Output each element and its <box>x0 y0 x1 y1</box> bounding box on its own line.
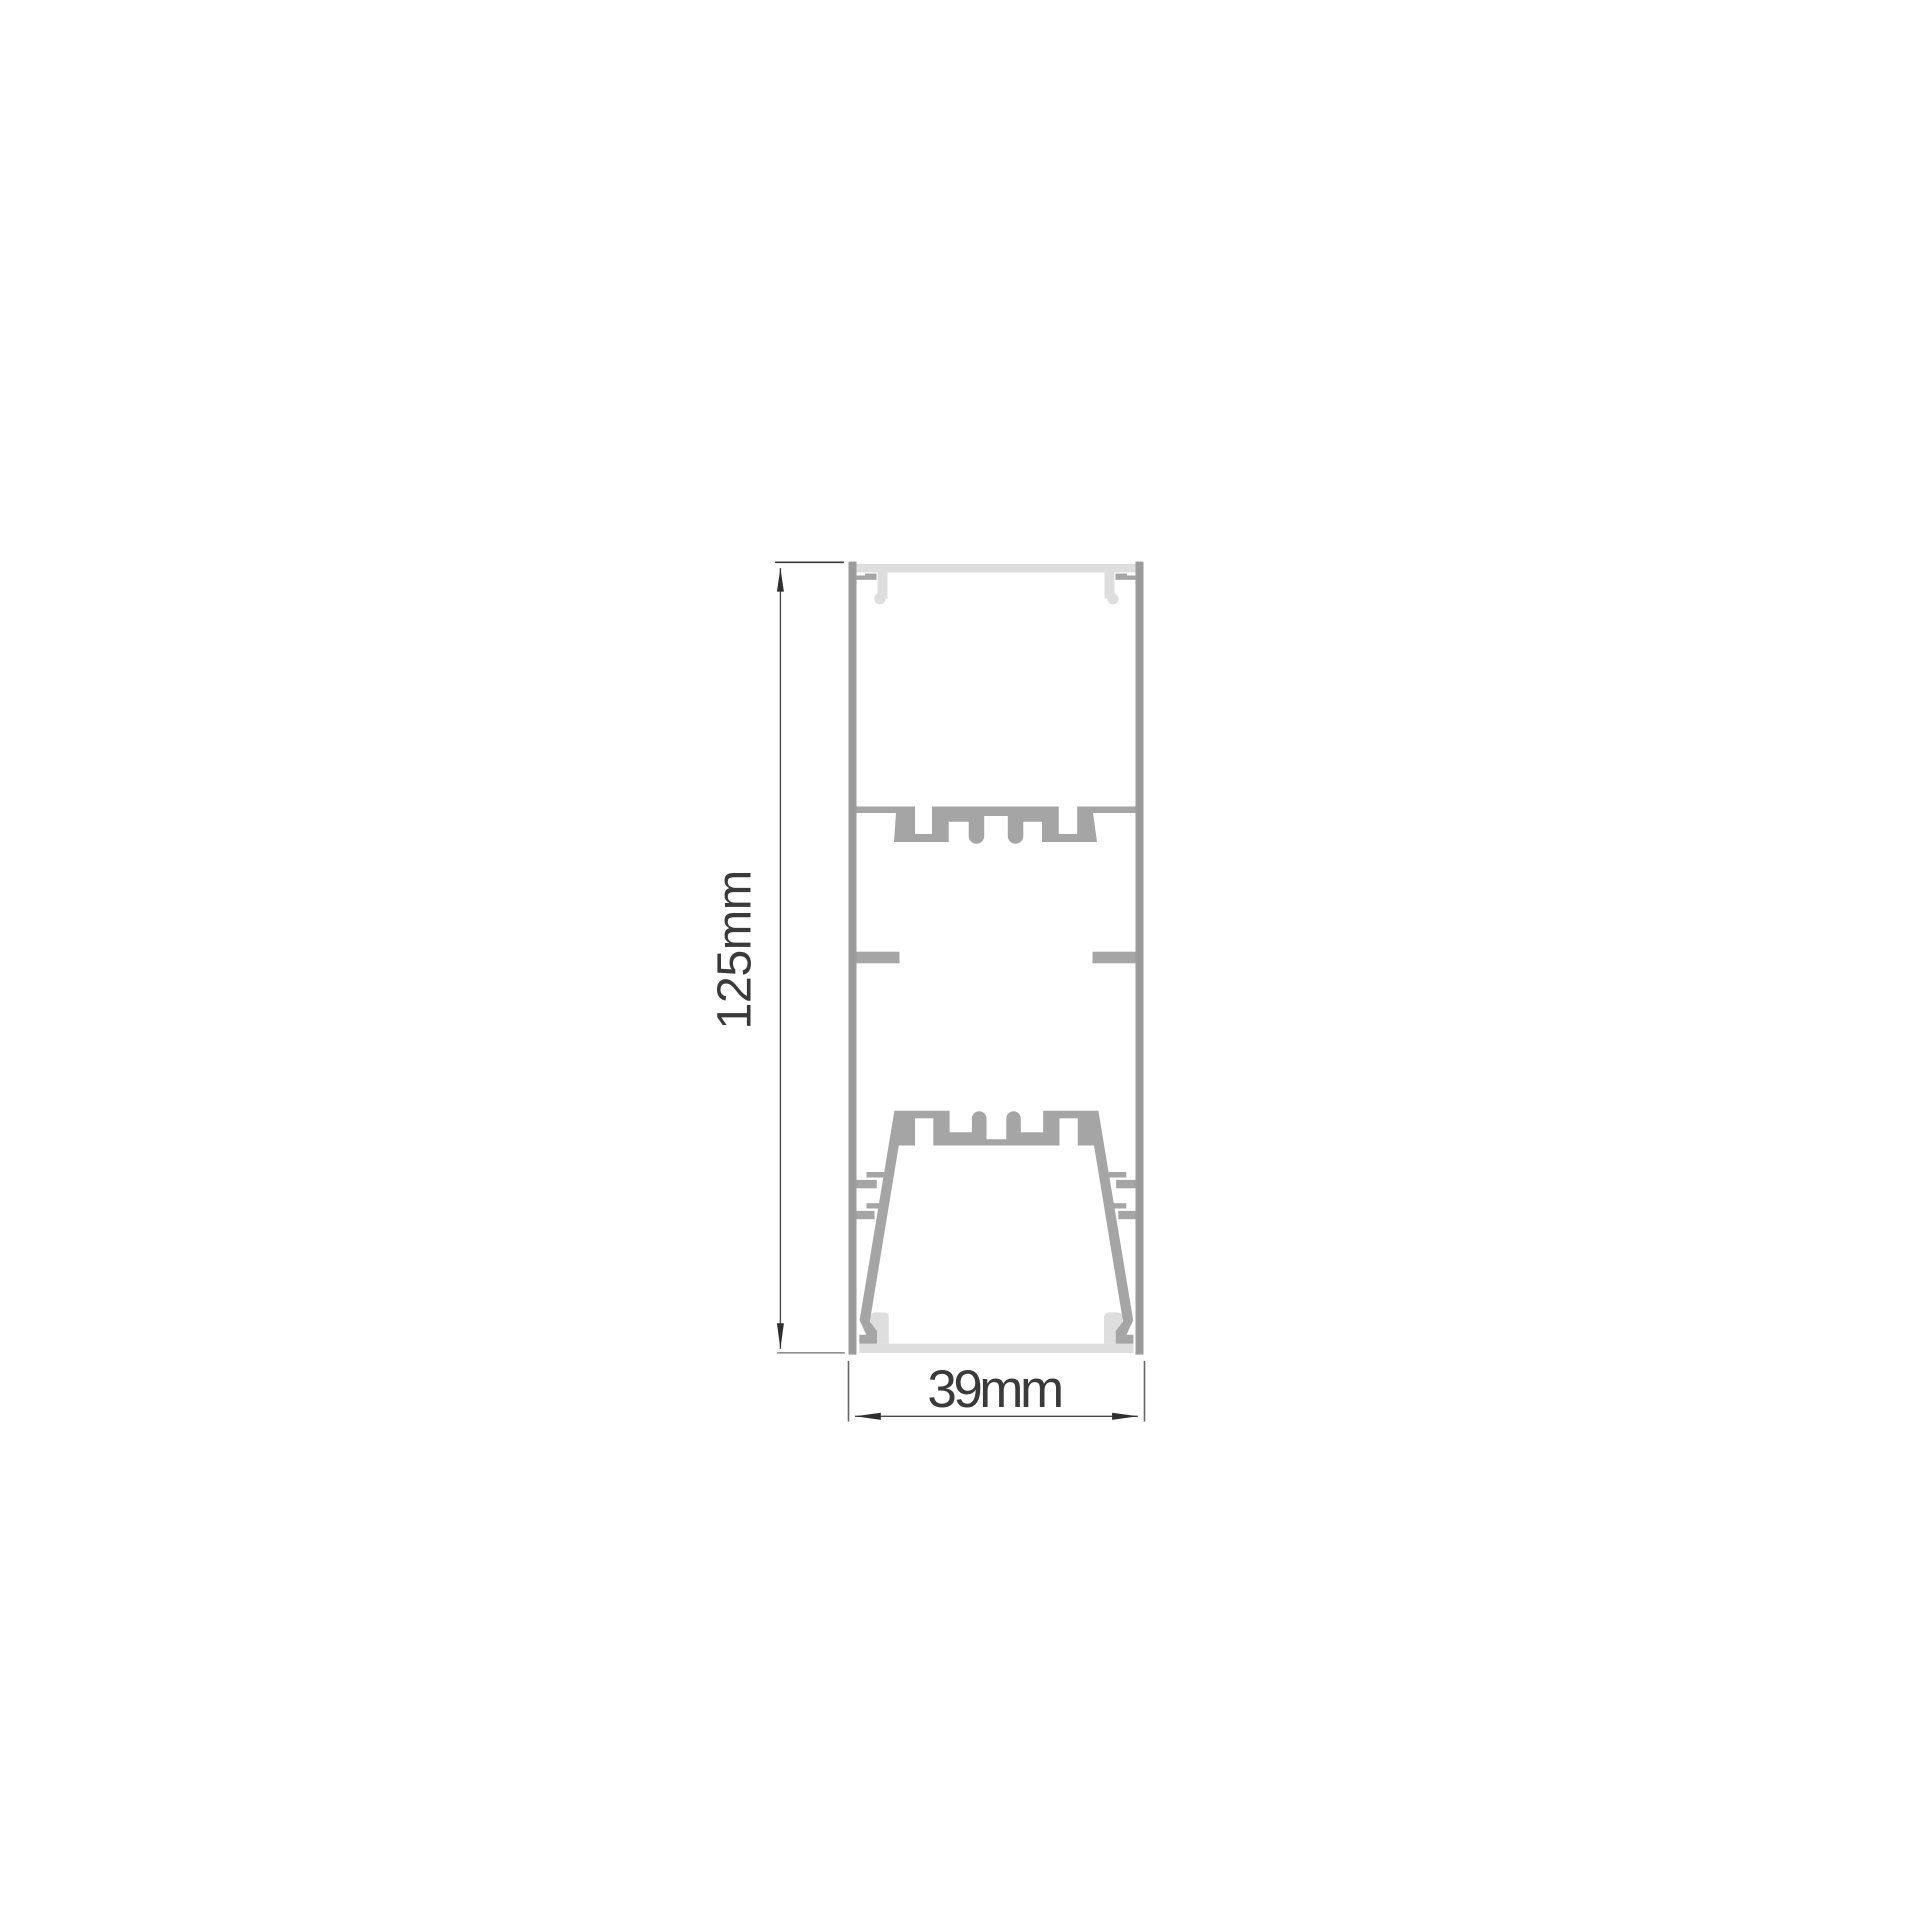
svg-text:125mm: 125mm <box>708 870 762 1029</box>
svg-text:39mm: 39mm <box>927 1360 1061 1419</box>
